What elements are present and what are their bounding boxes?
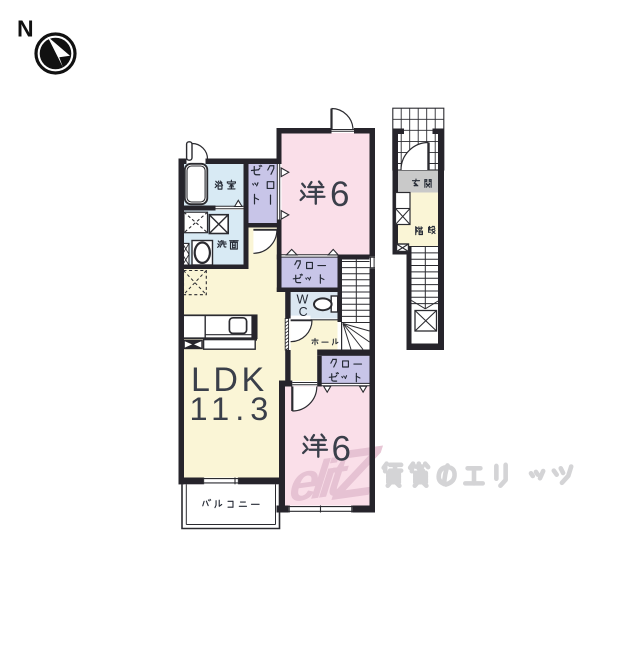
svg-text:N: N: [17, 16, 34, 42]
svg-text:6: 6: [330, 175, 349, 214]
svg-text:C: C: [299, 305, 308, 319]
svg-text:6: 6: [332, 430, 351, 469]
svg-text:11.3: 11.3: [190, 391, 275, 427]
